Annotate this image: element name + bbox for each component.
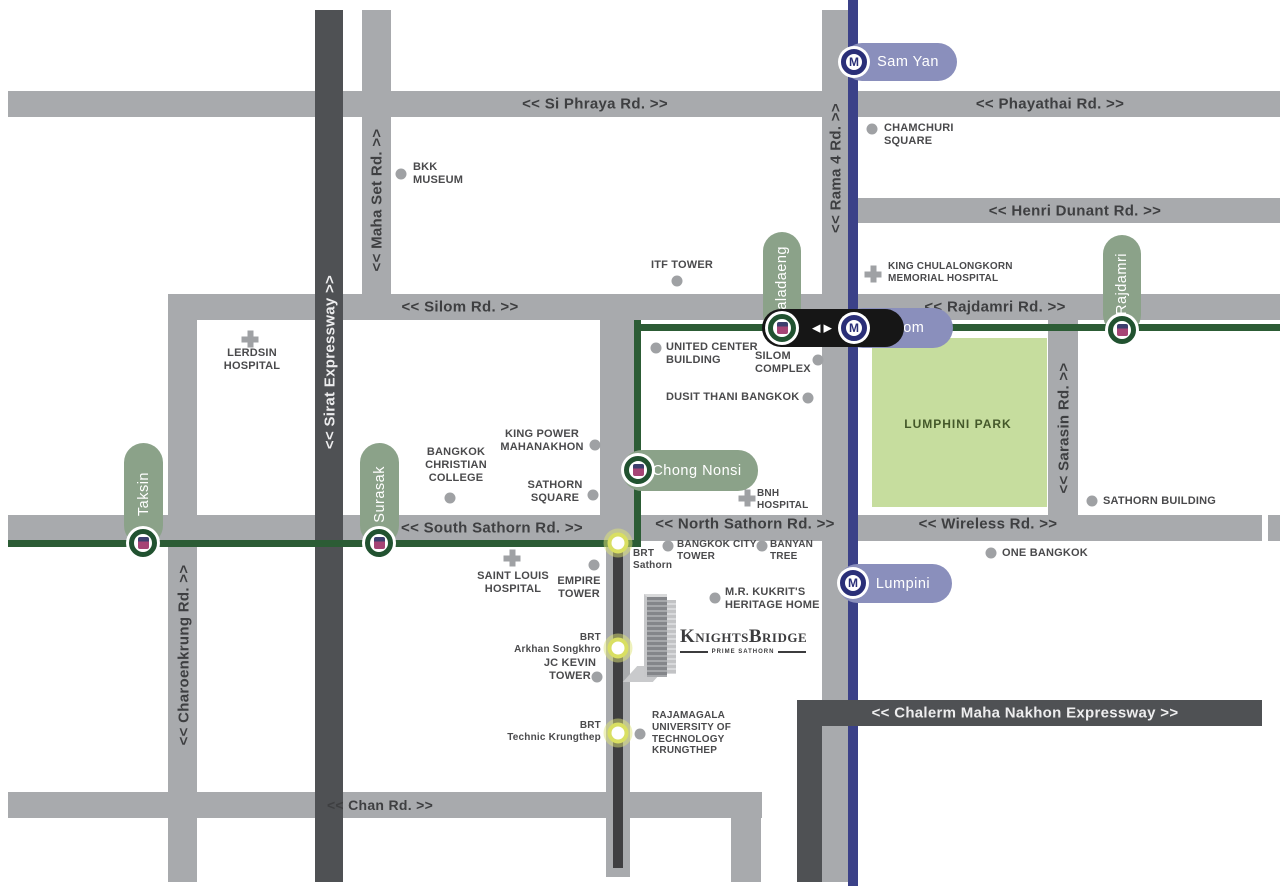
mrt-logo-letter: M: [849, 321, 859, 335]
dusit-thani-dot: [803, 393, 814, 404]
bkk-museum-label: BKK MUSEUM: [413, 161, 463, 187]
king-chulalongkorn-hospital-cross-icon: [865, 266, 882, 283]
mr-kukrit-label: M.R. KUKRIT'S HERITAGE HOME: [725, 586, 820, 612]
knightsbridge-building-icon: [644, 594, 676, 678]
road-label-phayathai: << Phayathai Rd. >>: [976, 96, 1124, 113]
lerdsin-hospital-cross-icon: [242, 331, 259, 348]
mrt-stop-lumpini-icon: M: [840, 570, 866, 596]
road-label-chan: << Chan Rd. >>: [327, 797, 433, 813]
united-center-label: UNITED CENTER BUILDING: [666, 341, 758, 367]
bts-stop-saladaeng-icon: [768, 314, 796, 342]
bnh-hospital-label: BNH HOSPITAL: [757, 488, 808, 512]
building-body: [644, 594, 667, 677]
mrt-blue-line: [848, 0, 858, 886]
mrt-stop-silom-icon: M: [841, 315, 867, 341]
road-chong-nonsi-corridor: [600, 294, 634, 541]
road-label-sarasin: << Sarasin Rd. >>: [1056, 362, 1073, 493]
empire-tower-dot: [589, 560, 600, 571]
brt-stop-arkhan-icon: [608, 638, 629, 659]
road-label-silom: << Silom Rd. >>: [401, 299, 518, 316]
knightsbridge-logo: KnightsBridge PRIME SATHORN: [680, 626, 806, 655]
brt-sathorn-label: BRT Sathorn: [633, 548, 672, 572]
bts-stop-surasak-icon: [365, 529, 393, 557]
mrt-station-sam-yan-label: Sam Yan: [877, 54, 939, 70]
saint-louis-label: SAINT LOUIS HOSPITAL: [477, 570, 549, 596]
bts-logo-icon: [633, 464, 644, 476]
bts-logo-icon: [138, 537, 149, 549]
road-label-si-phraya: << Si Phraya Rd. >>: [522, 96, 668, 113]
chamchuri-square-dot: [867, 124, 878, 135]
king-power-label: KING POWER MAHANAKHON: [500, 428, 583, 454]
bts-station-taksin-label: Taksin: [136, 472, 152, 516]
jc-kevin-label: JC KEVIN TOWER: [544, 657, 596, 683]
king-power-dot: [590, 440, 601, 451]
bts-logo-icon: [1117, 324, 1128, 336]
bts-station-surasak-label: Surasak: [372, 466, 388, 523]
banyan-tree-dot: [757, 541, 768, 552]
brt-line: [613, 543, 623, 868]
itf-tower-dot: [672, 276, 683, 287]
knightsbridge-tagline: PRIME SATHORN: [712, 649, 775, 655]
dusit-thani-label: DUSIT THANI BANGKOK: [666, 391, 799, 404]
mr-kukrit-dot: [710, 593, 721, 604]
brt-stop-sathorn-icon: [608, 533, 629, 554]
sathorn-square-label: SATHORN SQUARE: [528, 479, 583, 505]
bkk-museum-dot: [396, 169, 407, 180]
bts-stop-taksin-icon: [129, 529, 157, 557]
banyan-tree-label: BANYAN TREE: [770, 539, 813, 563]
bts-line-silom: [634, 324, 1280, 331]
sathorn-square-dot: [588, 490, 599, 501]
road-label-wireless: << Wireless Rd. >>: [919, 516, 1058, 533]
chamchuri-square-label: CHAMCHURI SQUARE: [884, 122, 954, 148]
arrow-right-icon: ▶: [824, 322, 832, 335]
lumphini-park-label: LUMPHINI PARK: [904, 417, 1011, 431]
bts-logo-icon: [374, 537, 385, 549]
road-label-charoenkrung: << Charoenkrung Rd. >>: [176, 565, 193, 746]
bangkok-city-tower-label: BANGKOK CITY TOWER: [677, 539, 757, 563]
lerdsin-hospital-label: LERDSIN HOSPITAL: [224, 347, 280, 373]
road-label-maha-set: << Maha Set Rd. >>: [369, 129, 386, 272]
road-chan-south-leg: [731, 792, 761, 882]
bts-stop-rajdamri-icon: [1108, 316, 1136, 344]
mrt-stop-sam-yan-icon: M: [841, 49, 867, 75]
one-bangkok-dot: [986, 548, 997, 559]
saint-louis-hospital-cross-icon: [504, 550, 521, 567]
arrow-left-icon: ◀: [812, 322, 820, 335]
road-label-henri-dunant: << Henri Dunant Rd. >>: [989, 203, 1161, 220]
sathorn-building-dot: [1087, 496, 1098, 507]
rajamagala-label: RAJAMAGALA UNIVERSITY OF TECHNOLOGY KRUN…: [652, 710, 731, 757]
road-label-rama4: << Rama 4 Rd. >>: [828, 103, 845, 233]
bts-station-chong-nonsi-label: Chong Nonsi: [652, 463, 741, 479]
brt-technic-label: BRT Technic Krungthep: [507, 720, 601, 744]
knightsbridge-tagline-row: PRIME SATHORN: [680, 649, 806, 655]
bts-line-chong-nonsi-vertical: [634, 320, 641, 547]
bts-line-sathorn: [8, 540, 641, 547]
road-label-south-sathorn: << South Sathorn Rd. >>: [401, 520, 583, 537]
brt-arkhan-label: BRT Arkhan Songkhro: [514, 632, 601, 656]
bts-logo-icon: [777, 322, 788, 334]
road-label-sirat: << Sirat Expressway >>: [322, 275, 339, 449]
rajamagala-dot: [635, 729, 646, 740]
mrt-station-lumpini-label: Lumpini: [876, 576, 930, 592]
bangkok-christian-dot: [445, 493, 456, 504]
mrt-logo-letter: M: [848, 576, 858, 590]
united-center-dot: [651, 343, 662, 354]
sathorn-building-label: SATHORN BUILDING: [1103, 495, 1216, 508]
itf-tower-label: ITF TOWER: [651, 259, 713, 272]
one-bangkok-label: ONE BANGKOK: [1002, 547, 1088, 560]
silom-complex-label: SILOM COMPLEX: [755, 350, 811, 376]
building-side: [667, 600, 676, 674]
bnh-hospital-cross-icon: [739, 490, 756, 507]
interchange-arrows-icon: ◀ ▶: [812, 322, 832, 335]
mrt-logo-letter: M: [849, 55, 859, 69]
bangkok-christian-label: BANGKOK CHRISTIAN COLLEGE: [425, 446, 487, 485]
road-wireless-east-stub: [1268, 515, 1280, 541]
silom-complex-dot: [813, 355, 824, 366]
road-label-chalerm: << Chalerm Maha Nakhon Expressway >>: [872, 705, 1179, 722]
knightsbridge-wordmark: KnightsBridge: [680, 626, 806, 648]
brt-stop-technic-icon: [608, 723, 629, 744]
location-map: << Si Phraya Rd. >> << Phayathai Rd. >> …: [0, 0, 1280, 891]
empire-tower-label: EMPIRE TOWER: [557, 575, 600, 601]
road-chalerm-expressway-arm: [797, 700, 822, 882]
bts-station-rajdamri-label: Rajdamri: [1114, 253, 1130, 315]
king-chulalongkorn-label: KING CHULALONGKORN MEMORIAL HOSPITAL: [888, 261, 1013, 285]
road-label-north-sathorn: << North Sathorn Rd. >>: [655, 516, 834, 533]
bts-stop-chong-nonsi-icon: [624, 456, 652, 484]
